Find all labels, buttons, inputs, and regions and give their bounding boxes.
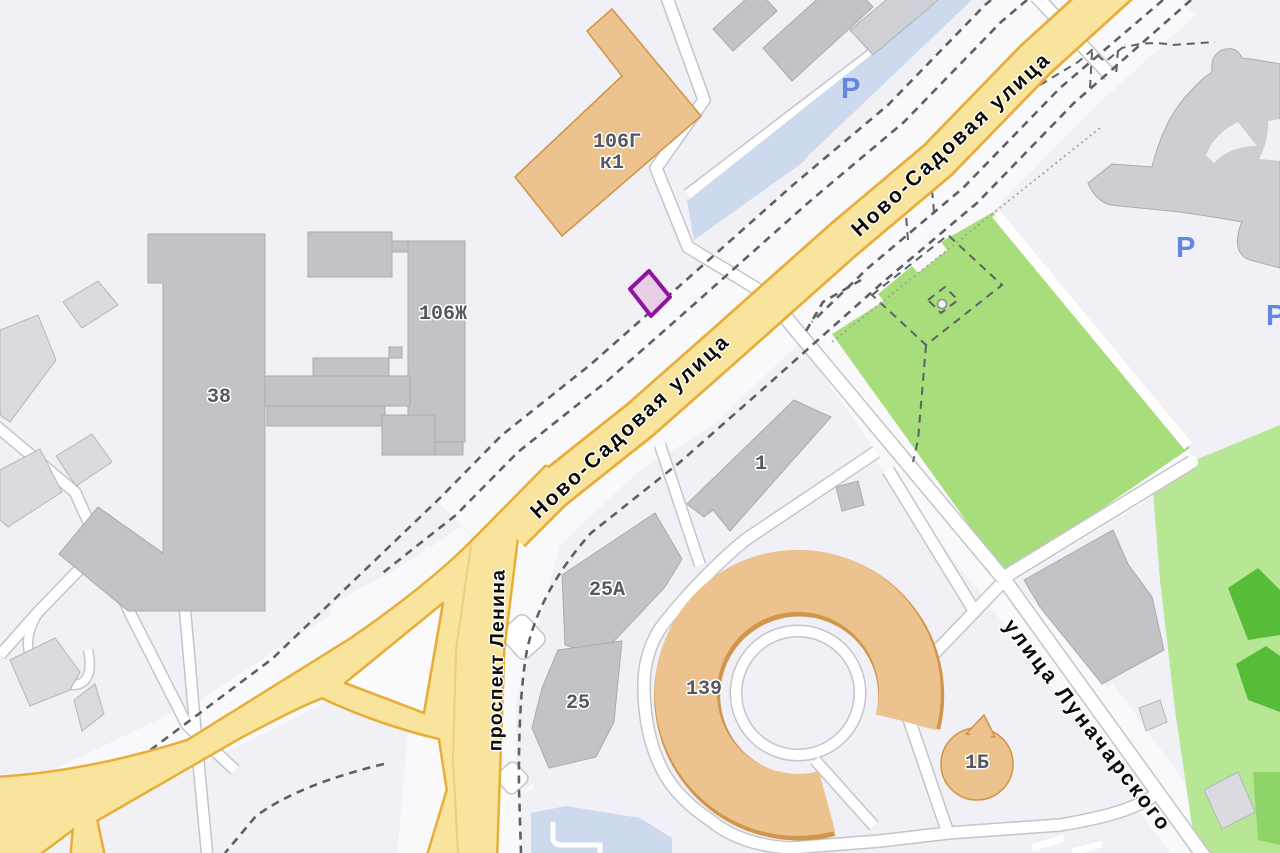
svg-text:106Ж: 106Ж (419, 303, 467, 326)
svg-text:P: P (841, 73, 860, 105)
svg-text:25А: 25А (589, 579, 625, 602)
svg-text:139: 139 (686, 678, 722, 701)
svg-text:38: 38 (207, 386, 231, 409)
svg-text:проспект Ленина: проспект Ленина (484, 569, 509, 752)
svg-text:P: P (1176, 232, 1195, 264)
svg-text:106Г: 106Г (593, 131, 641, 154)
svg-text:1Б: 1Б (965, 752, 989, 775)
svg-text:25: 25 (566, 692, 590, 715)
svg-text:P: P (1266, 300, 1280, 332)
svg-text:к1: к1 (600, 152, 624, 175)
svg-text:1: 1 (755, 453, 767, 476)
